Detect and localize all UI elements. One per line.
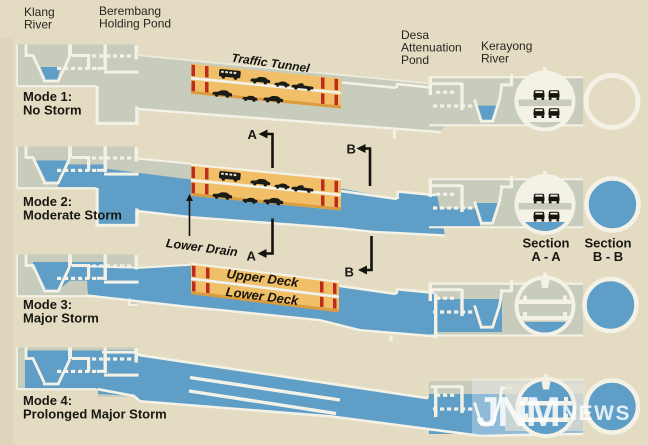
svg-text:Moderate Storm: Moderate Storm [23, 208, 122, 223]
svg-text:River: River [481, 52, 509, 66]
svg-text:A - A: A - A [531, 249, 561, 264]
svg-text:Pond: Pond [401, 53, 429, 67]
svg-text:NEWS: NEWS [562, 402, 631, 425]
svg-text:Prolonged Major Storm: Prolonged Major Storm [23, 407, 167, 422]
svg-text:B - B: B - B [593, 249, 623, 264]
svg-text:JNM: JNM [476, 388, 559, 435]
svg-text:B: B [345, 265, 354, 280]
svg-text:A: A [248, 127, 258, 142]
svg-text:River: River [24, 18, 52, 32]
svg-text:A: A [247, 249, 257, 264]
svg-text:B: B [347, 142, 356, 157]
svg-text:Major Storm: Major Storm [23, 311, 99, 326]
svg-text:Holding Pond: Holding Pond [99, 17, 171, 31]
svg-text:No Storm: No Storm [23, 103, 82, 118]
